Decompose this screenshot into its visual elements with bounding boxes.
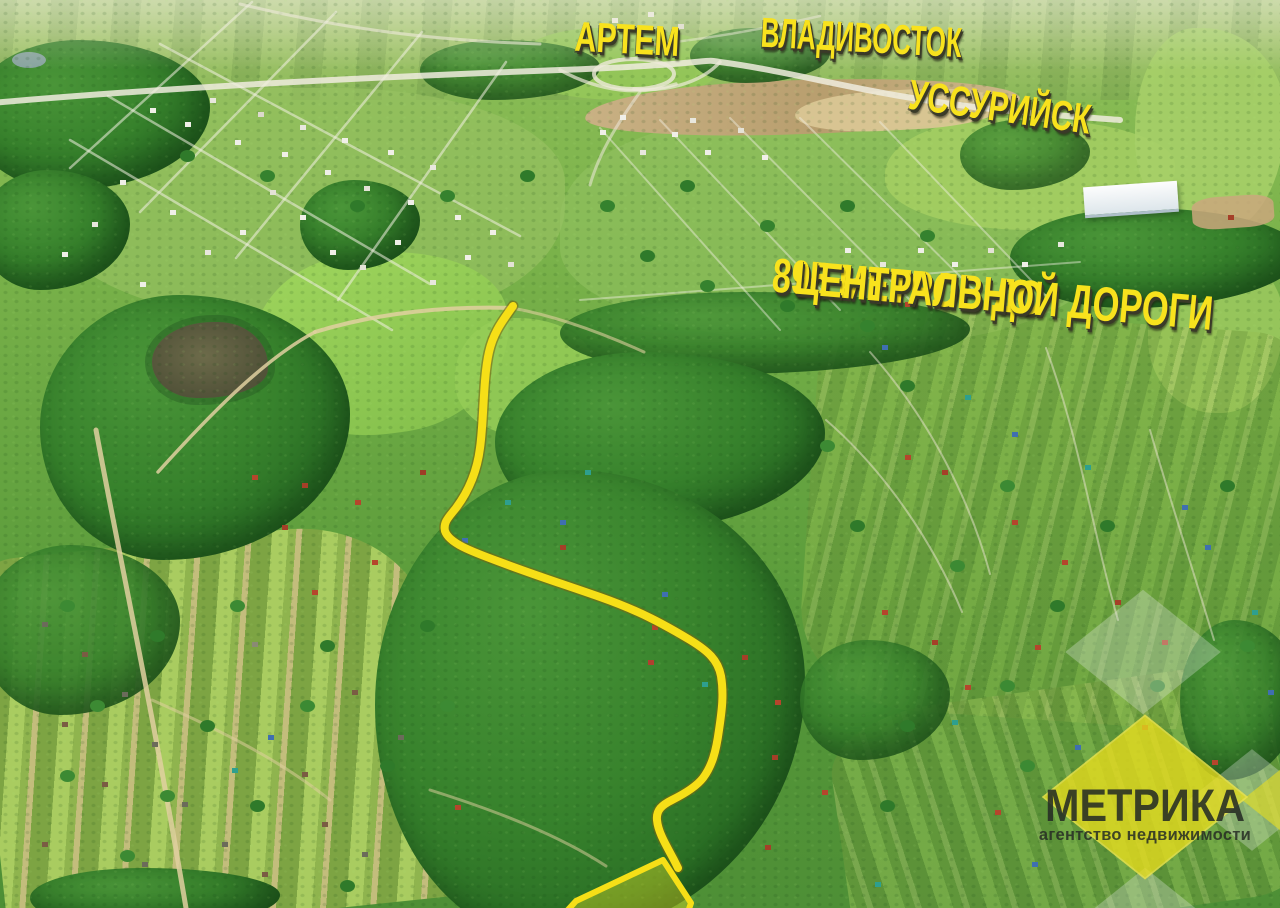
brand-name: МЕТРИКА — [1035, 783, 1256, 828]
brand-tagline: агентство недвижимости — [1029, 826, 1262, 843]
aerial-photo: АРТЕМ ВЛАДИВОСТОК УССУРИЙСК 895 МЕТРОВ Д… — [0, 0, 1280, 908]
